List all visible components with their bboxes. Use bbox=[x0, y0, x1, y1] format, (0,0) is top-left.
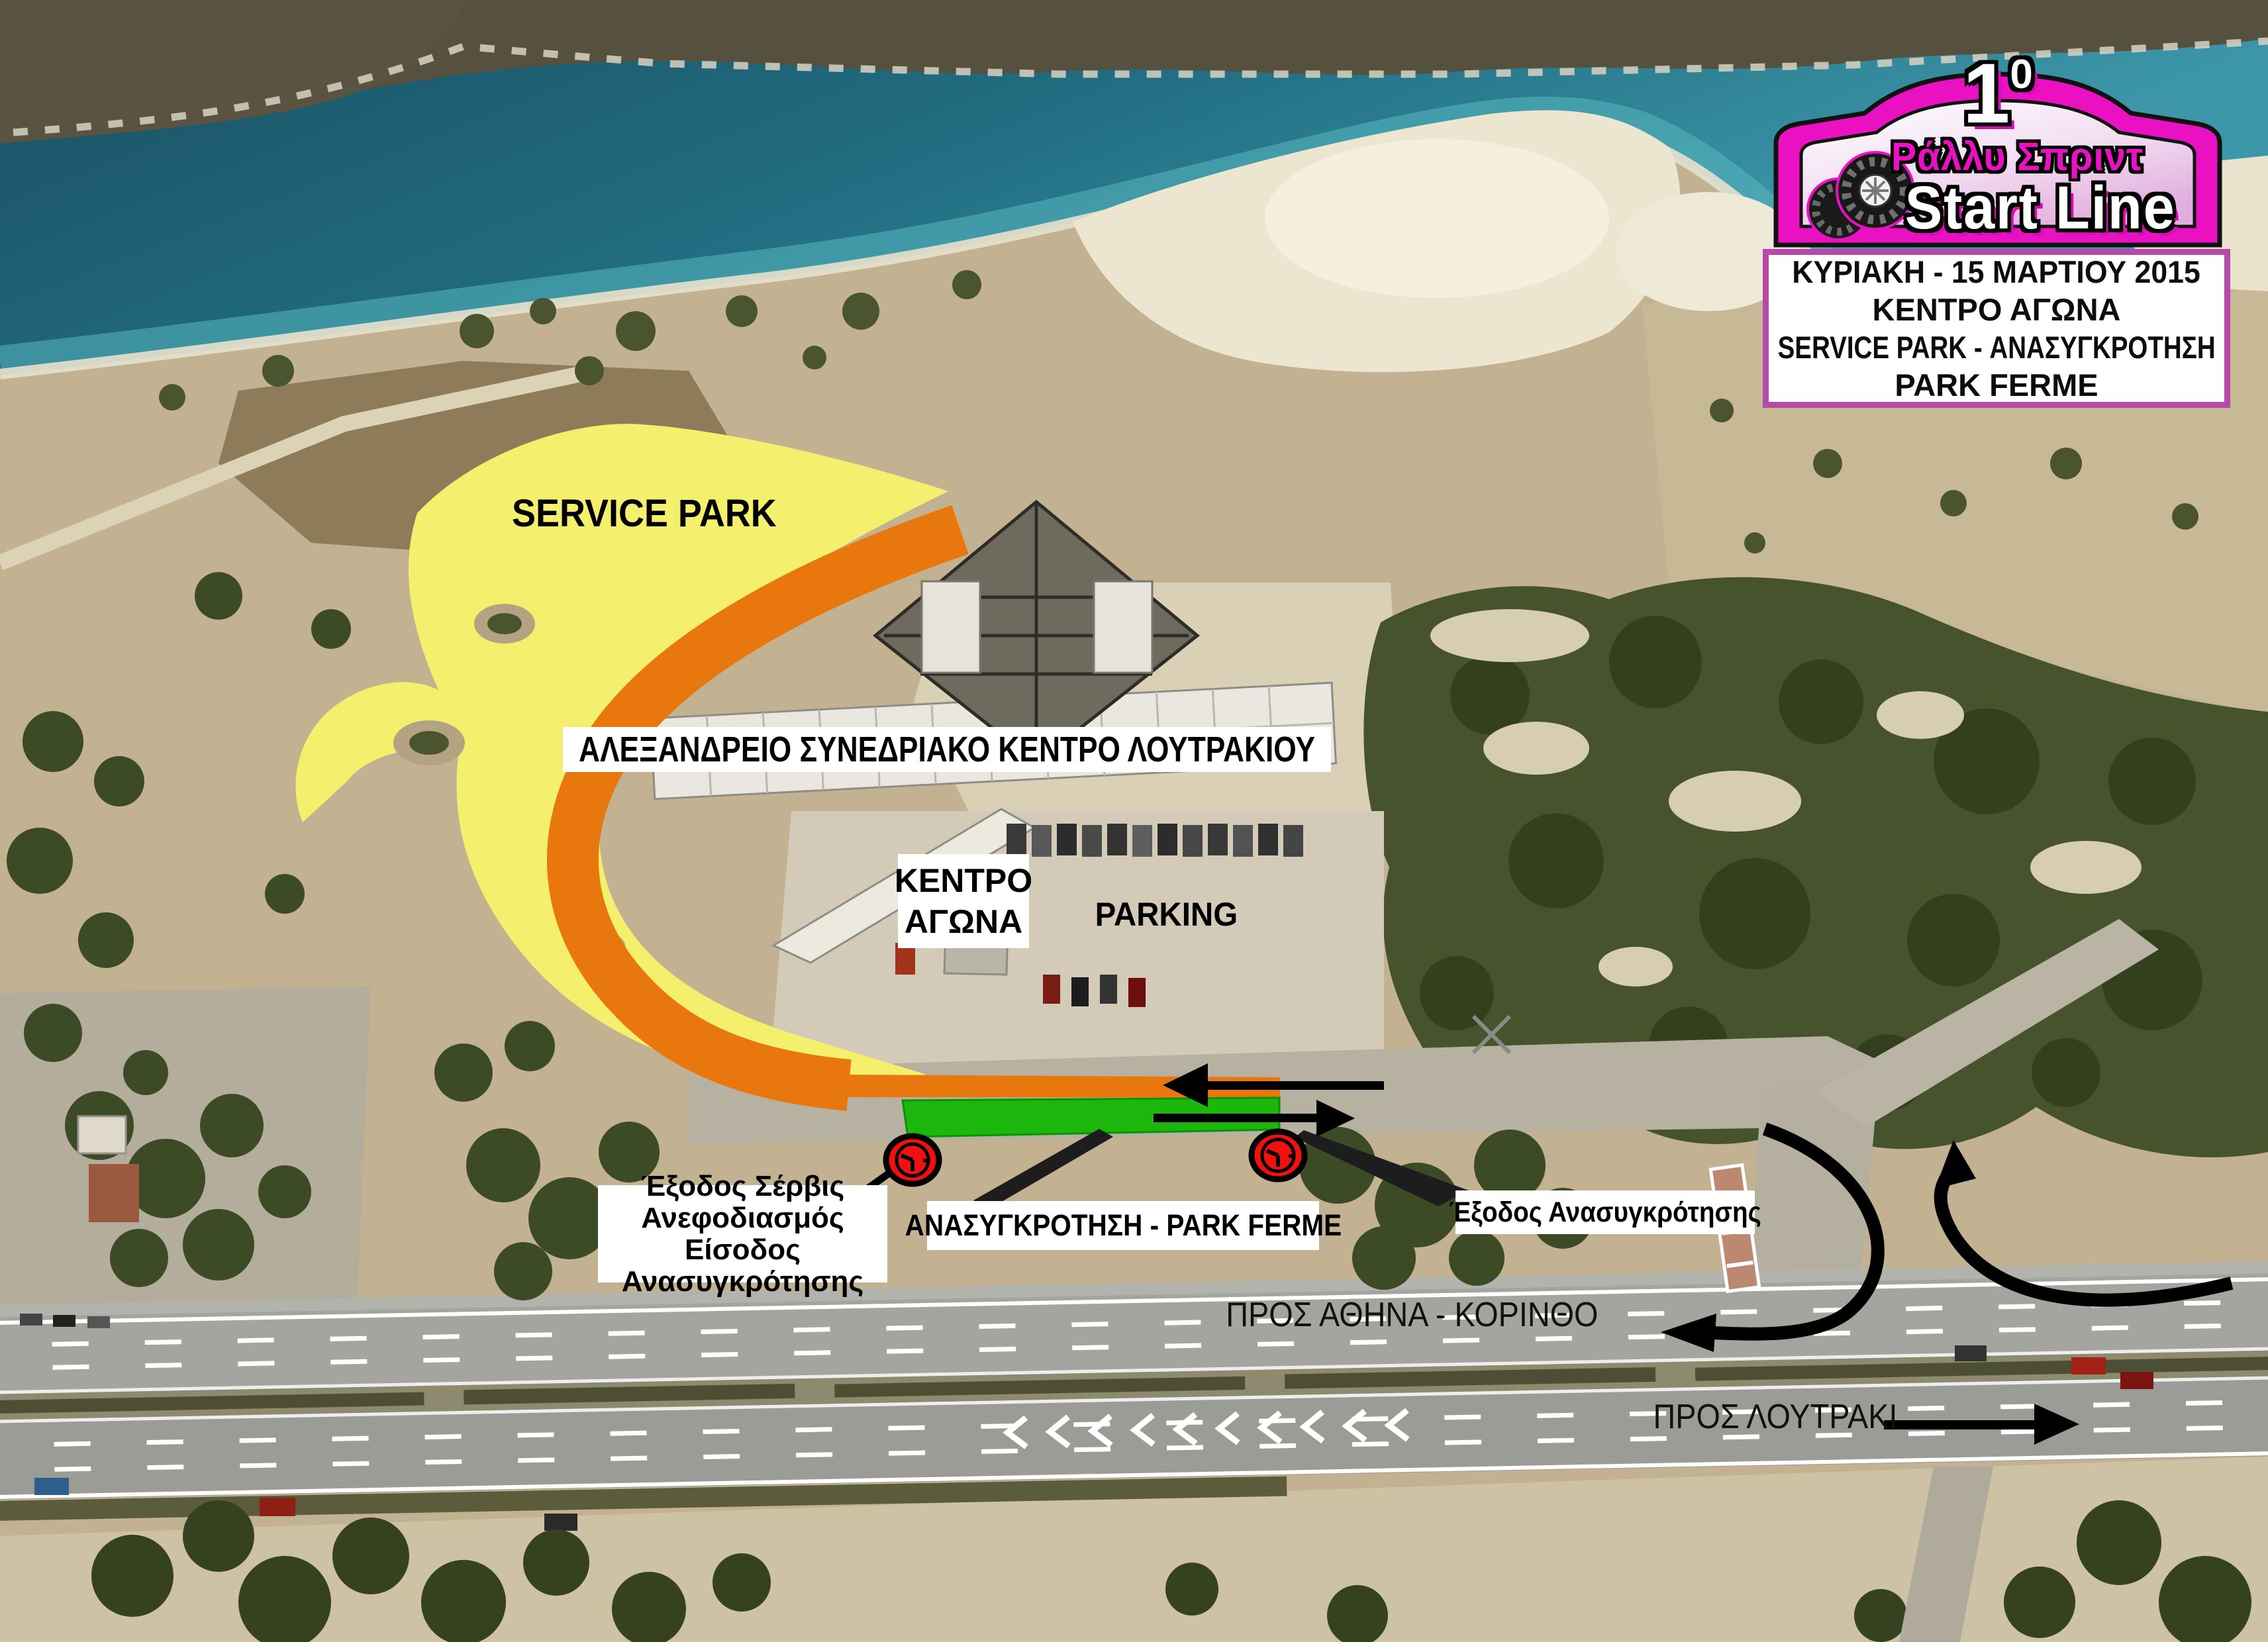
service-exit-callout: Έξοδος Σέρβις Ανεφοδιασμός Είσοδος Ανασυ… bbox=[598, 1185, 887, 1282]
time-control-clock-icon bbox=[886, 1136, 939, 1184]
white-shed bbox=[78, 1116, 126, 1153]
beach-bright bbox=[1265, 139, 1609, 298]
venue-label: ΑΛΕΞΑΝΔΡΕΙΟ ΣΥΝΕΔΡΙΑΚΟ ΚΕΝΤΡΟ ΛΟΥΤΡΑΚΙΟΥ bbox=[563, 727, 1331, 772]
time-control-clock-icon bbox=[1252, 1132, 1305, 1179]
red-roof-house bbox=[89, 1164, 139, 1222]
rally-service-park-map: SERVICE PARK ΑΛΕΞΑΝΔΡΕΙΟ ΣΥΝΕΔΡΙΑΚΟ ΚΕΝΤ… bbox=[0, 0, 2268, 1642]
service-park-label: SERVICE PARK bbox=[502, 491, 787, 536]
info-line: PARK FERME bbox=[1895, 366, 2098, 404]
plate-rank: 10 bbox=[1764, 52, 2232, 136]
to-loutraki-label: ΠΡΟΣ ΛΟΥΤΡΑΚΙ bbox=[1640, 1397, 1911, 1437]
plate-series: Ράλλυ Σπριντ bbox=[1804, 134, 2232, 179]
to-athens-label: ΠΡΟΣ ΑΘΗΝΑ - ΚΟΡΙΝΘΟ bbox=[1205, 1295, 1619, 1335]
plate-name: Start Line bbox=[1849, 173, 2232, 243]
parking-label: PARKING bbox=[1091, 895, 1242, 934]
rally-plate: 10 Ράλλυ Σπριντ Start Line bbox=[1764, 56, 2232, 249]
info-line: ΚΕΝΤΡΟ ΑΓΩΝΑ bbox=[1873, 291, 2121, 328]
event-info-box: ΚΥΡΙΑΚΗ - 15 ΜΑΡΤΙΟΥ 2015 ΚΕΝΤΡΟ ΑΓΩΝΑ S… bbox=[1763, 249, 2230, 408]
info-line: ΚΥΡΙΑΚΗ - 15 ΜΑΡΤΙΟΥ 2015 bbox=[1781, 253, 2211, 291]
regroup-exit-callout: Έξοδος Ανασυγκρότησης bbox=[1455, 1190, 1755, 1234]
regroup-callout: ΑΝΑΣΥΓΚΡΟΤΗΣΗ - PARK FERME bbox=[927, 1201, 1319, 1250]
race-hq-label: ΚΕΝΤΡΟ ΑΓΩΝΑ bbox=[898, 854, 1029, 948]
info-line: SERVICE PARK - ΑΝΑΣΥΓΚΡΟΤΗΣΗ bbox=[1730, 328, 2263, 366]
